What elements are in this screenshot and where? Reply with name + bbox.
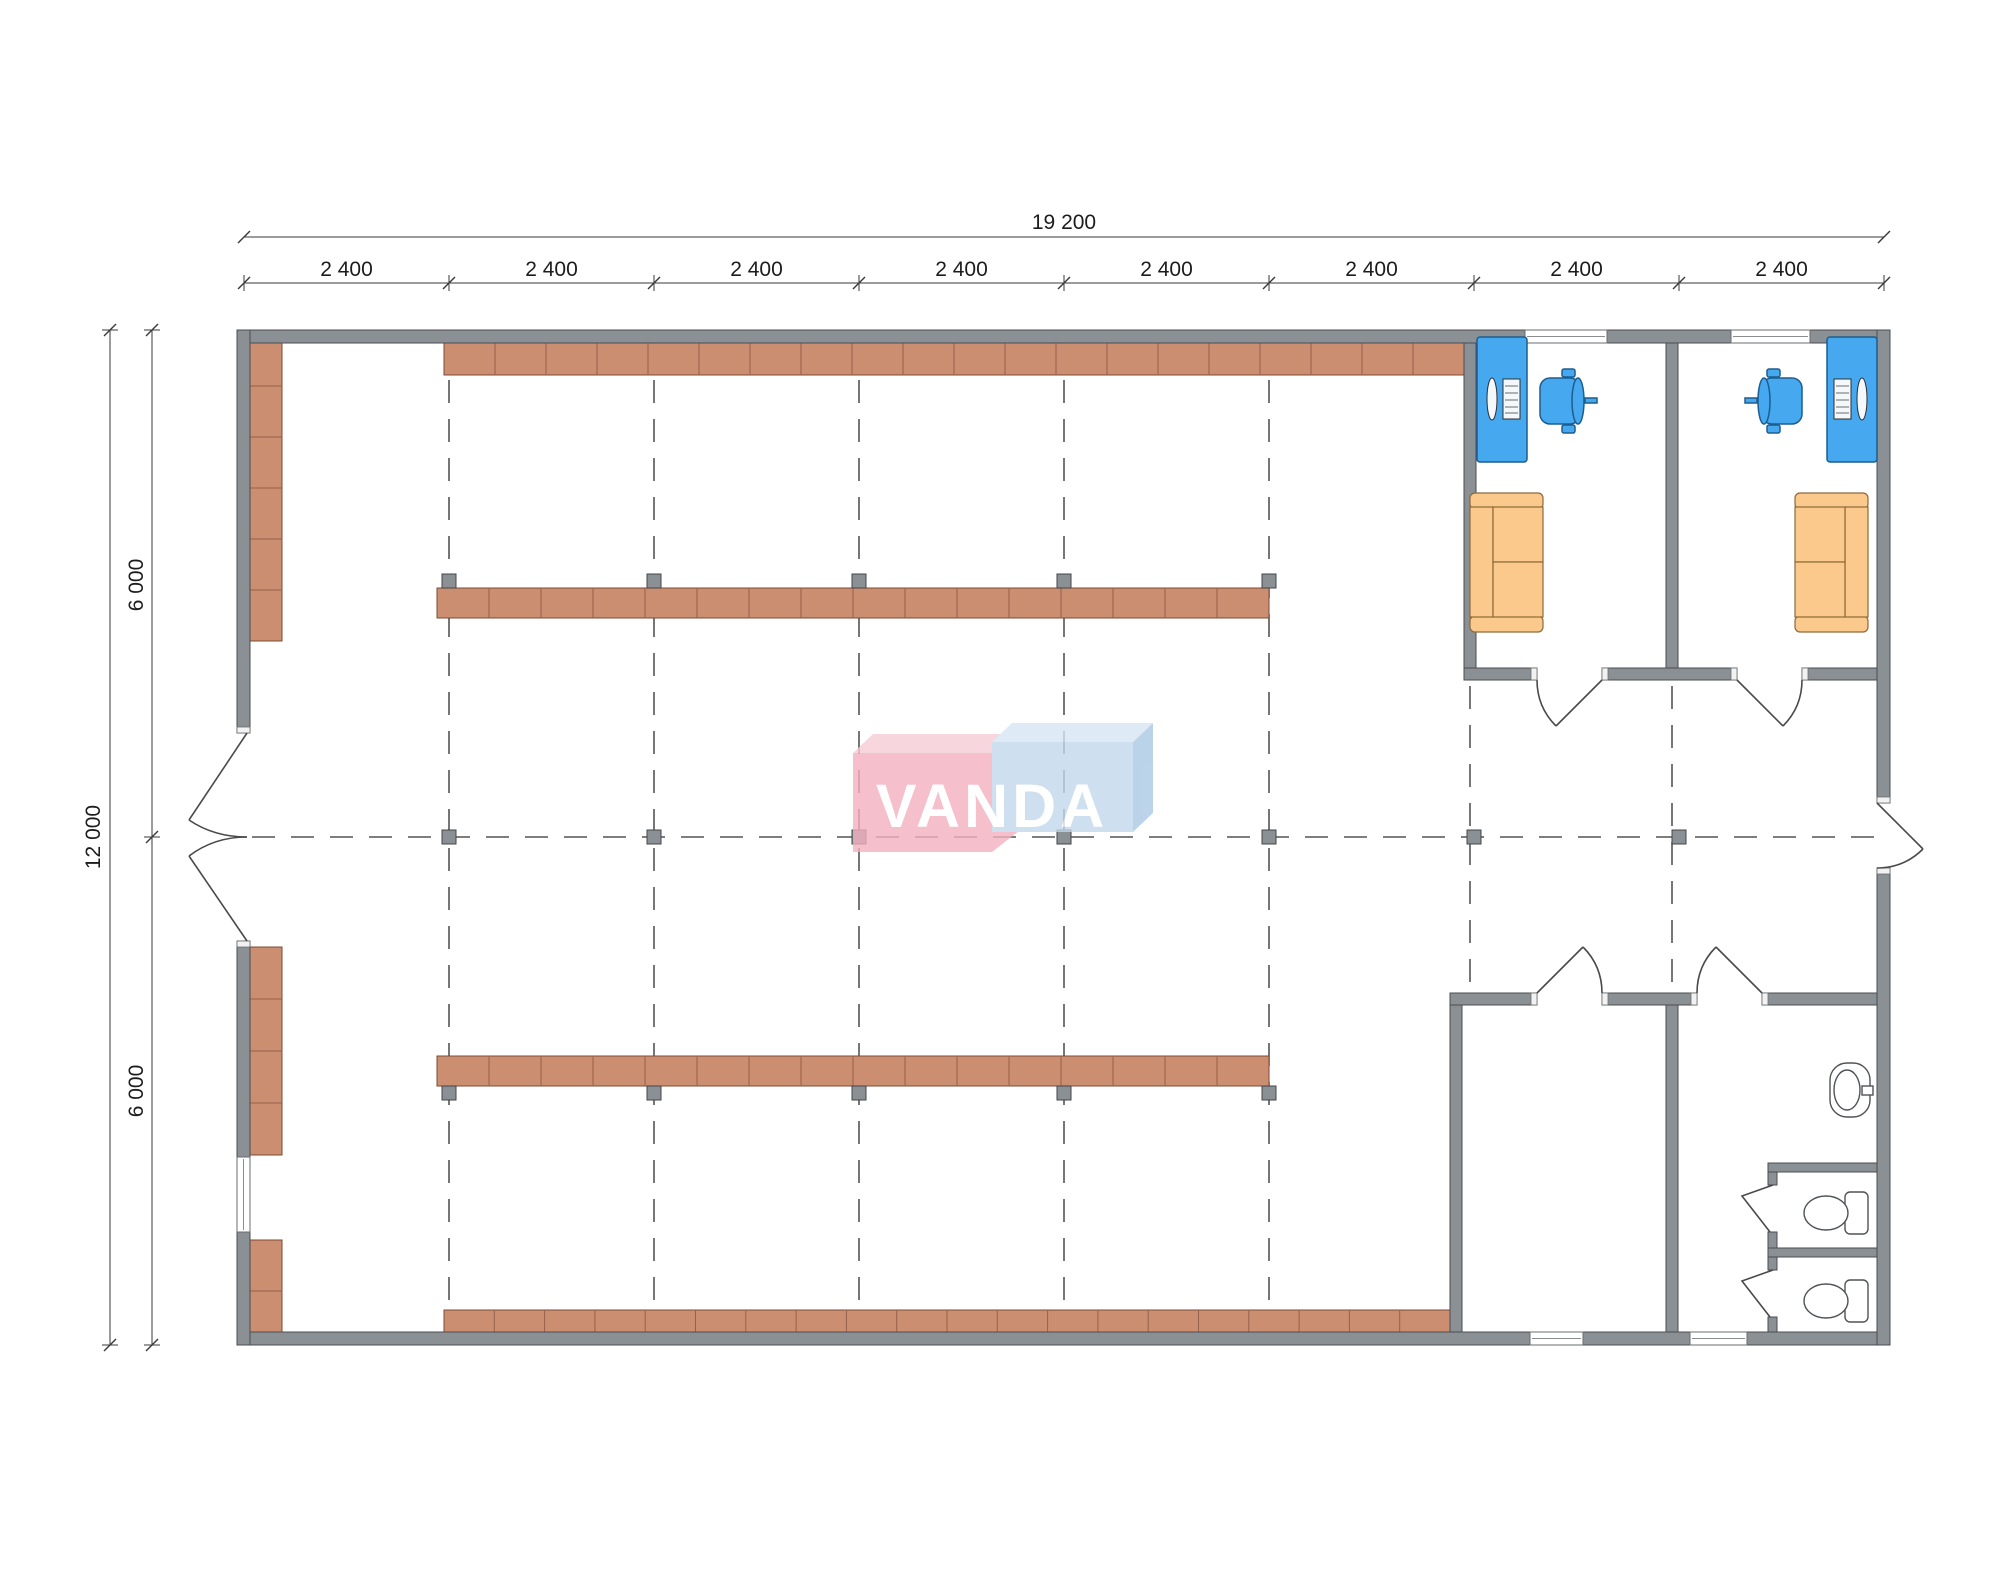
wc-stall-wall-2 xyxy=(1768,1248,1877,1257)
shelf-left-lower-a xyxy=(250,947,282,1155)
shelf-row-top xyxy=(444,343,1464,375)
door-jamb-cap xyxy=(1802,668,1808,680)
shelf-left-upper xyxy=(250,335,282,641)
backroom-north-wall-c xyxy=(1762,993,1877,1005)
dim-bay-label: 2 400 xyxy=(525,258,578,281)
column-marker xyxy=(1262,1086,1276,1100)
entrance-door-upper-leaf xyxy=(189,733,247,837)
dim-half-height-label-lower: 6 000 xyxy=(125,1065,148,1118)
backroom-west-wall xyxy=(1450,993,1462,1332)
wc-room-door xyxy=(1697,947,1762,993)
wc-stall-wall-1 xyxy=(1768,1163,1877,1172)
dim-total-width-label: 19 200 xyxy=(1032,211,1096,234)
column-marker xyxy=(852,1086,866,1100)
office-1-desk xyxy=(1477,337,1527,462)
office-2-door xyxy=(1737,680,1802,726)
column-marker xyxy=(647,1086,661,1100)
wc-stall-stub-1b xyxy=(1768,1232,1777,1248)
window-wc xyxy=(1690,1332,1747,1345)
door-jamb-cap xyxy=(1531,668,1537,680)
wc-stall-stub-2b xyxy=(1768,1317,1777,1332)
office-partition-wall xyxy=(1666,343,1678,680)
dim-bay-label: 2 400 xyxy=(935,258,988,281)
dim-bay-label: 2 400 xyxy=(320,258,373,281)
floor-plan-canvas: 19 200 2 4002 4002 4002 4002 4002 4002 4… xyxy=(0,0,2000,1574)
vanda-logo: VANDA xyxy=(853,723,1153,852)
column-marker xyxy=(442,1086,456,1100)
right-wall-upper xyxy=(1877,330,1890,803)
monitor-icon xyxy=(1487,378,1497,420)
door-jamb-cap xyxy=(1602,668,1608,680)
column-marker xyxy=(1057,1086,1071,1100)
shelf-row-upper-mid xyxy=(437,588,1269,618)
shelf-row-lower-mid xyxy=(437,1056,1269,1086)
dim-bay-label: 2 400 xyxy=(1550,258,1603,281)
dim-half-height-label-upper: 6 000 xyxy=(125,559,148,612)
office-1-door xyxy=(1537,680,1602,726)
window-office-1 xyxy=(1525,330,1607,343)
door-jamb-cap xyxy=(1691,993,1697,1005)
door-jamb-cap xyxy=(1731,668,1737,680)
column-marker xyxy=(1672,830,1686,844)
logo-pink-box-top xyxy=(853,734,1012,753)
bottom-wall xyxy=(237,1332,1890,1345)
wc-stall-stub-1a xyxy=(1768,1172,1777,1185)
dim-bay-label: 2 400 xyxy=(1345,258,1398,281)
wc-fixtures xyxy=(1804,1063,1873,1322)
door-jamb-cap xyxy=(1762,993,1768,1005)
office-2-sofa xyxy=(1795,493,1868,632)
logo-wordmark: VANDA xyxy=(876,772,1108,840)
office-2-desk xyxy=(1827,337,1877,462)
door-jamb-cap xyxy=(237,727,250,733)
dim-total-height-label: 12 000 xyxy=(82,805,105,869)
column-marker xyxy=(1262,574,1276,588)
storage-room-door xyxy=(1537,947,1602,993)
column-marker xyxy=(1262,830,1276,844)
column-marker xyxy=(647,574,661,588)
door-jamb-cap xyxy=(237,941,250,947)
backroom-north-wall-a xyxy=(1450,993,1537,1005)
office-south-wall-a xyxy=(1464,668,1537,680)
stall-2-bifold-door xyxy=(1742,1270,1773,1317)
left-wall-lower xyxy=(237,941,250,1345)
left-wall-upper xyxy=(237,330,250,733)
dim-bay-label: 2 400 xyxy=(730,258,783,281)
toilet-icon xyxy=(1804,1280,1868,1322)
office-1-chair xyxy=(1540,369,1597,433)
logo-blue-box-top xyxy=(992,723,1153,742)
office-south-wall-c xyxy=(1802,668,1877,680)
office-south-wall-b xyxy=(1602,668,1737,680)
logo-blue-box-side xyxy=(1133,723,1153,832)
window-left-wall xyxy=(237,1157,250,1232)
top-wall xyxy=(237,330,1890,343)
dim-bay-label: 2 400 xyxy=(1755,258,1808,281)
door-jamb-cap xyxy=(1602,993,1608,1005)
office-2-chair xyxy=(1745,369,1802,433)
column-marker xyxy=(852,574,866,588)
door-jamb-cap xyxy=(1877,868,1890,874)
column-marker xyxy=(442,830,456,844)
toilet-icon xyxy=(1804,1192,1868,1234)
dim-bay-label: 2 400 xyxy=(1140,258,1193,281)
backroom-partition-wall xyxy=(1666,1005,1678,1332)
backroom-north-wall-b xyxy=(1602,993,1697,1005)
door-jamb-cap xyxy=(1877,797,1890,803)
window-storage xyxy=(1530,1332,1583,1345)
side-exit-door xyxy=(1877,803,1923,868)
entrance-door-lower-leaf xyxy=(189,837,247,941)
office-1-sofa xyxy=(1470,493,1543,632)
column-marker xyxy=(1057,574,1071,588)
stall-1-bifold-door xyxy=(1742,1185,1773,1232)
sink-icon xyxy=(1830,1063,1873,1117)
monitor-icon xyxy=(1857,378,1867,420)
column-marker xyxy=(1467,830,1481,844)
shelf-left-lower-b xyxy=(250,1240,282,1342)
column-marker xyxy=(442,574,456,588)
right-wall-lower xyxy=(1877,868,1890,1345)
window-office-2 xyxy=(1731,330,1810,343)
wc-stall-stub-2a xyxy=(1768,1257,1777,1270)
column-marker xyxy=(647,830,661,844)
door-jamb-cap xyxy=(1531,993,1537,1005)
